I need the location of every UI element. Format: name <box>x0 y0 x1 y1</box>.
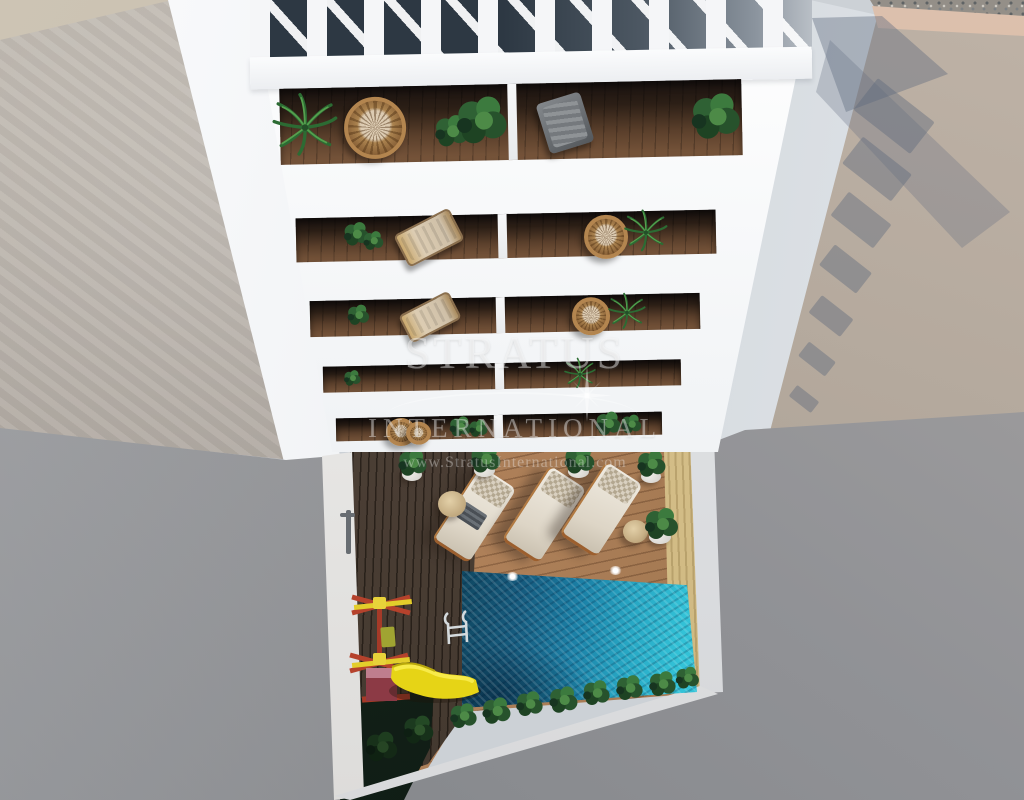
side-table <box>438 491 466 517</box>
yellow-slide <box>389 663 481 703</box>
garden-bush <box>478 694 514 728</box>
rattan-chair <box>343 96 406 159</box>
outdoor-shower-arm <box>340 513 355 517</box>
garden-bush <box>512 688 546 720</box>
deck-chair <box>535 91 594 154</box>
balcony-plant <box>447 90 514 151</box>
balcony-divider <box>507 84 518 160</box>
balcony-level-2 <box>296 210 717 263</box>
swing-set <box>350 597 412 671</box>
balcony-palm-plant <box>621 209 670 254</box>
playground <box>340 575 490 710</box>
balcony-plant <box>360 229 386 254</box>
balcony-divider <box>498 214 508 258</box>
pool-light <box>506 572 519 581</box>
garden-bush <box>672 664 702 692</box>
pool-light <box>609 566 622 575</box>
balcony-level-1 <box>279 79 742 165</box>
garden-bush <box>612 672 646 704</box>
watermark-brand: STRATUS <box>320 326 710 379</box>
potted-plant <box>640 504 682 544</box>
garden-bush <box>360 728 402 766</box>
balcony-plant <box>683 87 746 146</box>
garden-bush <box>579 677 613 709</box>
garden-bush <box>545 683 581 717</box>
balcony-lounger <box>393 207 465 267</box>
garden-bush <box>446 700 480 732</box>
watermark-url: www.StratusInternational.com <box>320 454 710 472</box>
balcony-palm-plant <box>271 92 338 159</box>
garden-bush <box>398 712 438 748</box>
balcony-plant <box>344 302 373 329</box>
watermark-subtitle: INTERNATIONAL <box>320 413 710 444</box>
architectural-render-scene: STRATUS INTERNATIONAL www.StratusInterna… <box>0 0 1024 800</box>
